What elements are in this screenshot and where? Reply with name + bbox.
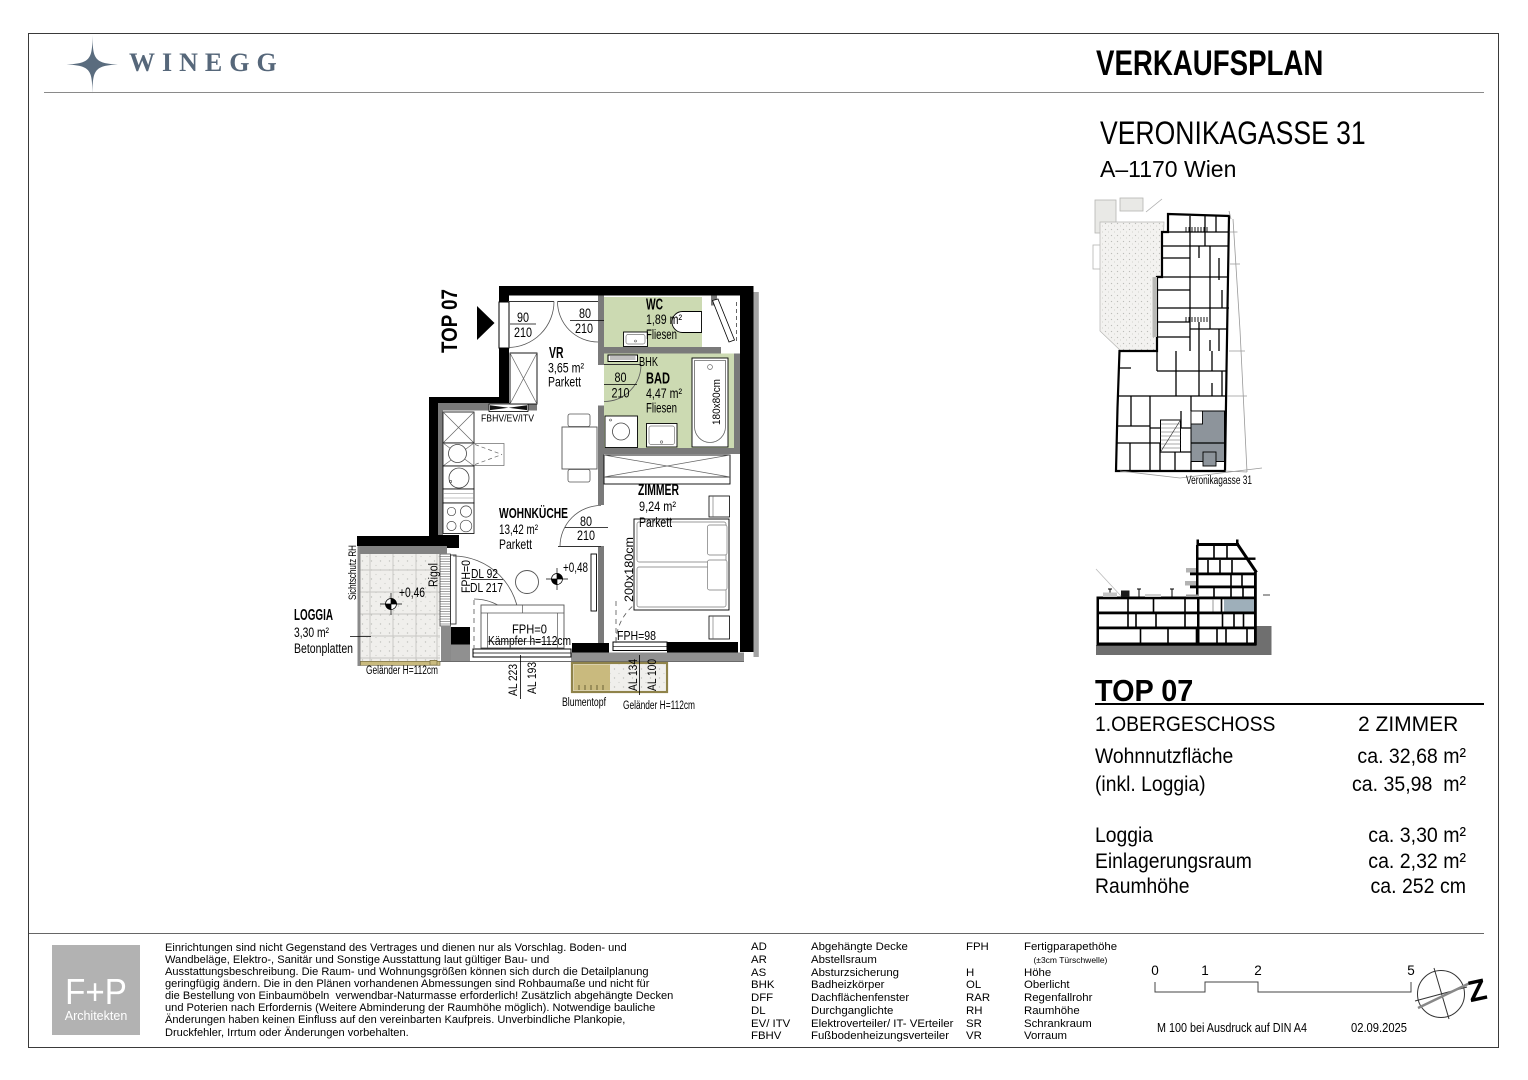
svg-text:9,24 m²: 9,24 m²: [639, 498, 676, 514]
svg-text:DL 217: DL 217: [470, 580, 503, 595]
svg-text:210: 210: [577, 528, 595, 544]
svg-text:180x80cm: 180x80cm: [711, 379, 723, 425]
svg-text:AL 193: AL 193: [525, 662, 539, 694]
svg-text:Veronikagasse 31: Veronikagasse 31: [1186, 475, 1252, 487]
svg-text:AL 134: AL 134: [626, 659, 640, 691]
svg-text:LOGGIA: LOGGIA: [294, 607, 333, 624]
svg-text:Parkett: Parkett: [499, 536, 532, 552]
svg-text:Geländer H=112cm: Geländer H=112cm: [623, 700, 695, 712]
svg-text:210: 210: [575, 321, 593, 337]
svg-text:80: 80: [579, 306, 591, 322]
svg-text:Sichtschutz RH: Sichtschutz RH: [347, 545, 359, 600]
svg-text:Rigol: Rigol: [427, 563, 441, 587]
svg-text:Kämpfer h=112cm: Kämpfer h=112cm: [488, 633, 571, 648]
svg-text:TOP 07: TOP 07: [437, 289, 462, 353]
svg-text:AL 100: AL 100: [645, 659, 659, 691]
svg-text:ZIMMER: ZIMMER: [638, 482, 679, 499]
svg-text:3,30 m²: 3,30 m²: [294, 625, 329, 640]
svg-text:200x180cm: 200x180cm: [622, 537, 636, 602]
svg-text:FBHV/EV/ITV: FBHV/EV/ITV: [481, 414, 534, 425]
svg-text:Parkett: Parkett: [548, 374, 581, 390]
svg-text:210: 210: [612, 386, 630, 402]
svg-text:WOHNKÜCHE: WOHNKÜCHE: [499, 505, 568, 522]
svg-text:80: 80: [615, 370, 627, 386]
svg-text:Fliesen: Fliesen: [646, 400, 677, 416]
svg-text:Fliesen: Fliesen: [646, 326, 677, 342]
svg-text:Betonplatten: Betonplatten: [294, 641, 353, 656]
svg-text:AL 223: AL 223: [506, 664, 520, 696]
svg-text:1,89 m²: 1,89 m²: [646, 311, 682, 327]
svg-text:Blumentopf: Blumentopf: [562, 697, 607, 709]
svg-text:13,42 m²: 13,42 m²: [499, 521, 538, 537]
svg-text:Geländer H=112cm: Geländer H=112cm: [366, 665, 438, 677]
svg-text:FPH=98: FPH=98: [617, 628, 656, 643]
svg-text:DL 92: DL 92: [471, 566, 498, 581]
svg-text:210: 210: [514, 325, 532, 341]
svg-text:BHK: BHK: [639, 355, 658, 369]
svg-text:+0,46: +0,46: [399, 585, 425, 600]
svg-text:Parkett: Parkett: [639, 514, 672, 530]
svg-text:+0,48: +0,48: [563, 560, 588, 575]
